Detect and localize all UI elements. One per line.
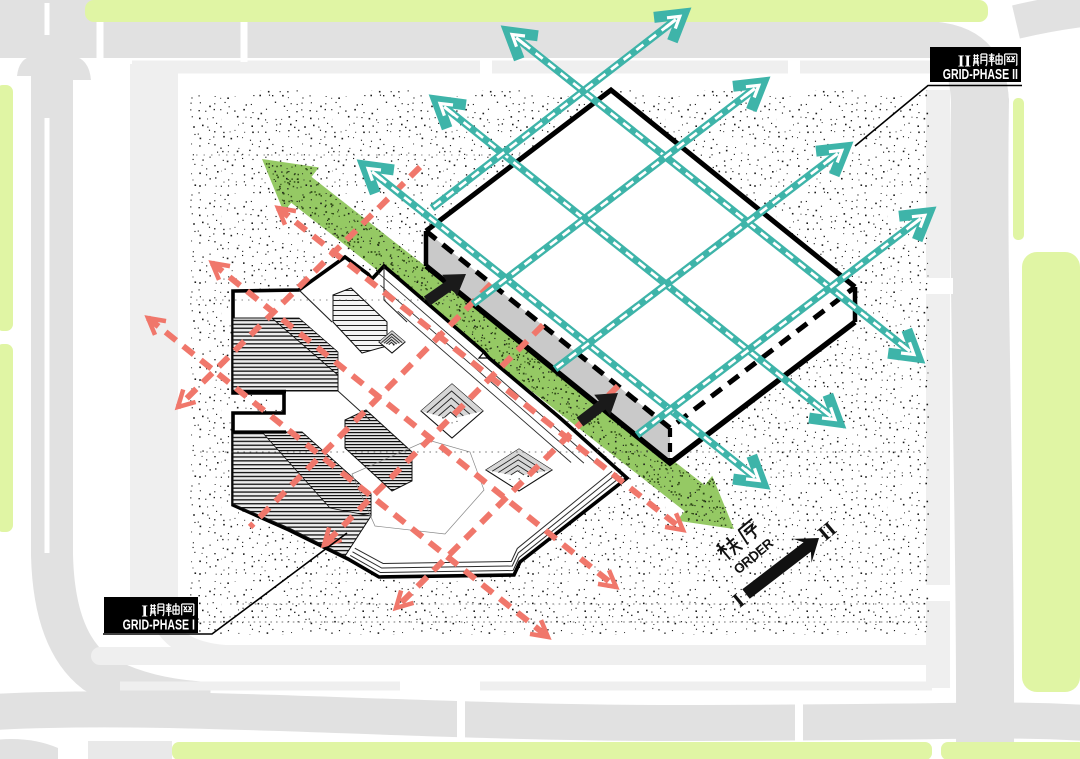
svg-text:GRID-PHASE I: GRID-PHASE I — [123, 617, 195, 633]
svg-text:GRID-PHASE II: GRID-PHASE II — [943, 66, 1018, 82]
